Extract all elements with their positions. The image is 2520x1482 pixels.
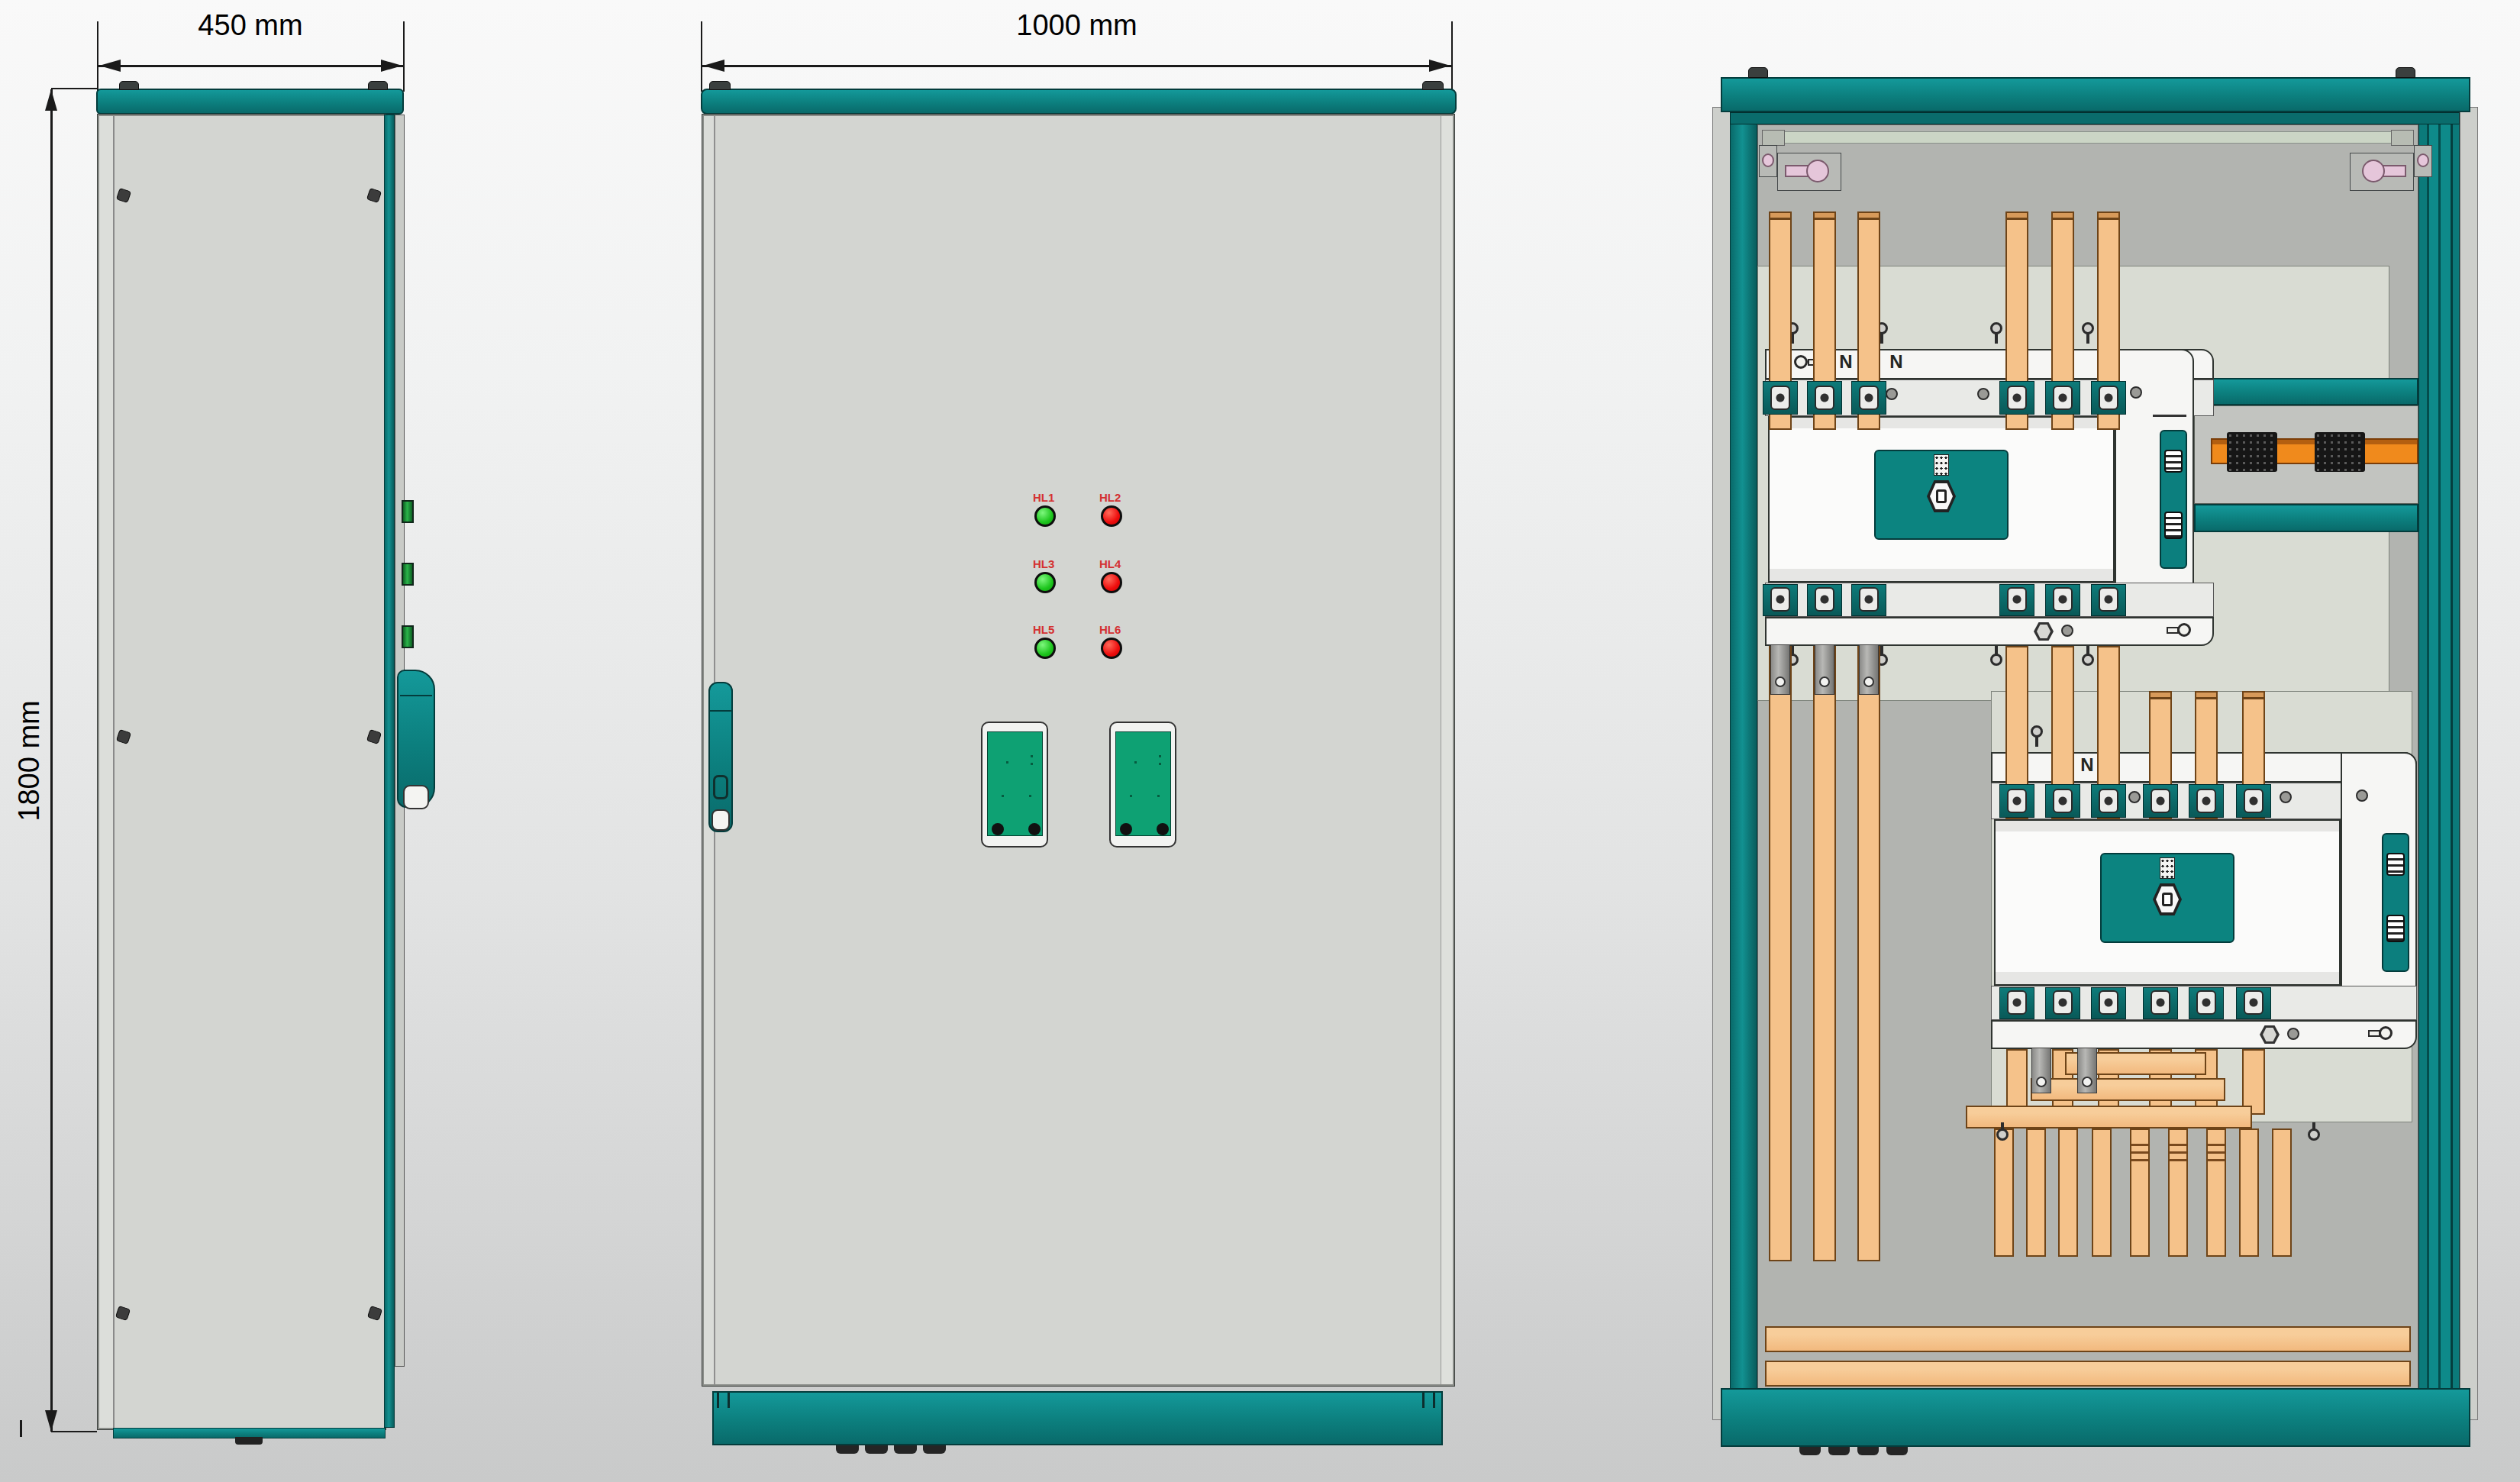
row-screw [1886, 388, 1898, 400]
terminal-lug [2053, 990, 2073, 1015]
frame-column-right [2418, 77, 2460, 1447]
indicator-label: HL3 [1033, 557, 1054, 570]
indicator-label: HL5 [1033, 623, 1054, 636]
liner-bracket [1762, 130, 1785, 146]
right-support-rail-bottom [2194, 504, 2418, 532]
indicator-light-hl3 [1034, 572, 1056, 593]
terminal-lug [2007, 990, 2027, 1015]
handle-keyhole [713, 775, 728, 799]
lug-hole [2082, 1077, 2092, 1087]
indicator-light-hl2 [1101, 505, 1122, 527]
eyelet-screw [1990, 654, 2002, 666]
terminal-lug [2196, 990, 2216, 1015]
indicator-light-hl6 [1101, 638, 1122, 659]
flange-keyhole-icon [1794, 355, 1808, 369]
terminal-block [2227, 432, 2277, 472]
meter-screw [992, 823, 1004, 835]
row-screw [2128, 791, 2141, 803]
face-dot [1159, 755, 1161, 757]
handle-shade-line [400, 695, 432, 696]
side-panel [98, 115, 386, 1429]
face-dot [1002, 795, 1004, 797]
face-dot [1130, 795, 1132, 797]
frame-bolt [1748, 67, 1768, 78]
face-dot [1006, 761, 1008, 764]
busbar-drop [2272, 1128, 2292, 1257]
front-view: HL1 HL2 HL3 HL4 HL5 HL6 [699, 76, 1458, 1460]
busbar-joint-marks [2131, 1144, 2148, 1164]
front-door [702, 115, 1454, 1386]
front-top-rail [701, 89, 1457, 115]
plinth-foot [1828, 1447, 1850, 1455]
row-screw [2280, 791, 2292, 803]
rail-bolt [1422, 81, 1444, 90]
latch-keyhole-circle [2362, 160, 2385, 182]
busbar-vertical-long [1813, 646, 1836, 1261]
lug-hole [2036, 1077, 2047, 1087]
ats1-shaft-socket [1936, 489, 1947, 503]
module-line [2153, 415, 2186, 417]
terminal-lug [2053, 587, 2073, 612]
plinth-corner-mark [1433, 1393, 1435, 1408]
eyelet-screw [2082, 322, 2094, 334]
side-panel-back-strip [99, 116, 115, 1428]
ats1-bottom-flange [1765, 617, 2214, 646]
plinth-corner-mark [717, 1393, 719, 1408]
dim-line-side-width [98, 65, 403, 67]
aux-connector [2164, 512, 2183, 539]
aux-connector [2386, 853, 2405, 876]
bottom-notch [235, 1437, 263, 1445]
eyelet-screw [2308, 1128, 2320, 1141]
terminal-lug [2099, 386, 2118, 410]
terminal-lug [2099, 789, 2118, 813]
eyelet-screw [1996, 1128, 2009, 1141]
eyelet-stem [1995, 333, 1998, 344]
lug-hole [1863, 676, 1874, 687]
row-screw [1977, 388, 1989, 400]
side-view [92, 76, 420, 1460]
terminal-lug [2099, 587, 2118, 612]
dim-arrow [381, 60, 402, 72]
eyelet-screw [2031, 725, 2043, 738]
door-hinge [402, 500, 414, 523]
plinth-foot [836, 1445, 859, 1454]
busbar-drop [1994, 1128, 2014, 1257]
meter-window-face [1115, 731, 1171, 836]
busbar-vertical-long [1769, 646, 1792, 1261]
terminal-lug [2151, 789, 2170, 813]
busbar-joint-marks [2170, 1144, 2186, 1164]
eyelet-stem [1880, 333, 1883, 344]
front-plinth [712, 1391, 1443, 1445]
flange-screw [2061, 625, 2073, 637]
busbar-drop [2239, 1128, 2259, 1257]
aux-connector [2386, 915, 2405, 942]
dim-label-height: 1800 mm [13, 685, 46, 838]
dim-ext-line [51, 88, 97, 89]
terminal-lug [1815, 386, 1834, 410]
meter-screw [1120, 823, 1132, 835]
rail-bolt [368, 81, 388, 90]
dim-line-height [50, 89, 53, 1432]
dim-arrow [45, 89, 57, 111]
terminal-lug [2007, 789, 2027, 813]
door-right-strip [1441, 116, 1453, 1384]
frame-side-panel-right [2460, 107, 2478, 1420]
terminal-lug [1770, 386, 1790, 410]
plinth-foot [1886, 1447, 1908, 1455]
bottom-busbar [1765, 1326, 2411, 1352]
dim-tick [20, 1420, 22, 1437]
latch-keyhole-tail [2382, 165, 2406, 177]
lug-hole [1775, 676, 1786, 687]
ats1-indicator-glyph [1934, 454, 1949, 476]
plinth-foot [1857, 1447, 1879, 1455]
side-door-gap-strip [384, 115, 395, 1428]
terminal-lug [1859, 587, 1879, 612]
terminal-lug [2053, 386, 2073, 410]
handle-shade-line [710, 710, 731, 712]
plinth-foot [1799, 1447, 1821, 1455]
eyelet-screw [2082, 654, 2094, 666]
frame-side-panel-left [1712, 107, 1731, 1420]
ats2-shaft-socket [2162, 893, 2173, 906]
meter-screw [1157, 823, 1169, 835]
frame-bolt [2396, 67, 2415, 78]
plinth-foot [923, 1445, 946, 1454]
dim-arrow [99, 60, 121, 72]
indicator-light-hl4 [1101, 572, 1122, 593]
terminal-label-n: N [1832, 351, 1860, 373]
busbar-drop [2058, 1128, 2078, 1257]
flange-screw [2287, 1028, 2299, 1040]
dim-ext-line [51, 1431, 97, 1432]
dim-label-side-width: 450 mm [98, 9, 403, 42]
meter-window-face [987, 731, 1043, 836]
terminal-lug [2053, 789, 2073, 813]
dim-arrow [1429, 60, 1450, 72]
terminal-label-n: N [1883, 351, 1910, 373]
ats2-indicator-glyph [2160, 857, 2175, 879]
face-dot [1159, 763, 1161, 765]
door-hinge [402, 625, 414, 648]
busbar-drop [2026, 1128, 2046, 1257]
eyelet-stem [2086, 333, 2089, 344]
bottom-busbar [1765, 1361, 2411, 1387]
frame-top-rail-inner [1730, 112, 2460, 124]
busbar-horizontal [2031, 1078, 2225, 1101]
plinth-foot [865, 1445, 888, 1454]
dim-line-front-width [702, 65, 1451, 67]
right-support-rail-top [2194, 378, 2418, 405]
terminal-lug [2244, 990, 2263, 1015]
eyelet-stem [2035, 736, 2038, 747]
plinth-corner-mark [1422, 1393, 1425, 1408]
latch-keyhole-circle [1806, 160, 1829, 182]
terminal-lug [2244, 789, 2263, 813]
handle-lock-cap [711, 809, 730, 831]
indicator-label: HL4 [1099, 557, 1121, 570]
lug-hole [1819, 676, 1830, 687]
dim-label-front-width: 1000 mm [702, 9, 1451, 42]
busbar-vertical-long [1857, 646, 1880, 1261]
busbar-horizontal [1966, 1106, 2252, 1128]
flange-keyhole-icon [2379, 1026, 2393, 1040]
frame-column-left [1730, 77, 1757, 1447]
liner-bracket [2391, 130, 2414, 146]
face-dot [1157, 795, 1160, 797]
cable-lug-tab [1815, 644, 1834, 695]
indicator-light-hl1 [1034, 505, 1056, 527]
module-screw [2356, 789, 2368, 802]
handle-lock-cap [403, 785, 429, 809]
internal-view: N N N [1710, 67, 2481, 1464]
busbar-joint-marks [2208, 1144, 2225, 1164]
top-liner-rail [1763, 131, 2412, 144]
terminal-lug [2007, 386, 2027, 410]
terminal-lug [2196, 789, 2216, 813]
indicator-light-hl5 [1034, 638, 1056, 659]
terminal-block [2315, 432, 2365, 472]
busbar-drop [2092, 1128, 2112, 1257]
door-hinge [402, 563, 414, 586]
latch-pin [2417, 153, 2429, 167]
terminal-lug [1859, 386, 1879, 410]
eyelet-screw [1990, 322, 2002, 334]
cable-lug-tab [1770, 644, 1790, 695]
face-dot [1134, 761, 1137, 764]
indicator-label: HL6 [1099, 623, 1121, 636]
face-dot [1031, 763, 1033, 765]
aux-connector [2164, 450, 2183, 473]
indicator-label: HL1 [1033, 491, 1054, 504]
ats2-bottom-flange [1991, 1020, 2417, 1049]
dim-arrow [45, 1410, 57, 1432]
indicator-label: HL2 [1099, 491, 1121, 504]
internal-plinth [1721, 1388, 2470, 1447]
side-top-rail [96, 89, 404, 115]
plinth-foot [894, 1445, 917, 1454]
face-dot [1029, 795, 1031, 797]
flange-keyhole-icon [2177, 623, 2191, 637]
face-dot [1031, 755, 1033, 757]
meter-screw [1028, 823, 1041, 835]
terminal-lug [1770, 587, 1790, 612]
frame-top-rail [1721, 77, 2470, 112]
terminal-lug [1815, 587, 1834, 612]
terminal-lug [2099, 990, 2118, 1015]
terminal-lug [2007, 587, 2027, 612]
cad-drawing-canvas: 450 mm 1000 mm 1800 mm [0, 0, 2520, 1482]
terminal-lug [2151, 990, 2170, 1015]
dim-arrow [703, 60, 724, 72]
rail-bolt [709, 81, 731, 90]
module-screw [2130, 386, 2142, 399]
rail-bolt [119, 81, 139, 90]
plinth-corner-mark [728, 1393, 730, 1408]
latch-pin [1762, 153, 1774, 167]
cable-lug-tab [1859, 644, 1879, 695]
